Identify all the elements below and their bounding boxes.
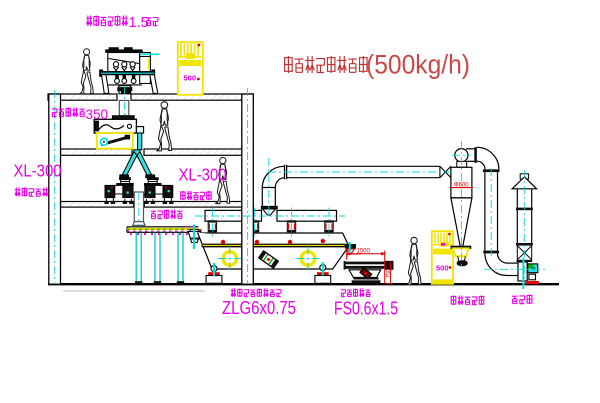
svg-text:750: 750	[386, 269, 392, 278]
svg-text:500: 500	[436, 264, 449, 273]
svg-text:350: 350	[86, 107, 109, 122]
svg-text:ZLG6x0.75: ZLG6x0.75	[222, 298, 296, 318]
svg-text:(500kg/h): (500kg/h)	[366, 50, 470, 80]
svg-text:1500: 1500	[357, 249, 371, 255]
svg-text:XL-300: XL-300	[179, 165, 227, 185]
svg-text:FS0.6x1.5: FS0.6x1.5	[334, 299, 398, 319]
svg-text:XL-300: XL-300	[14, 161, 62, 181]
svg-text:1.5: 1.5	[129, 15, 149, 31]
svg-text:500: 500	[184, 74, 197, 83]
